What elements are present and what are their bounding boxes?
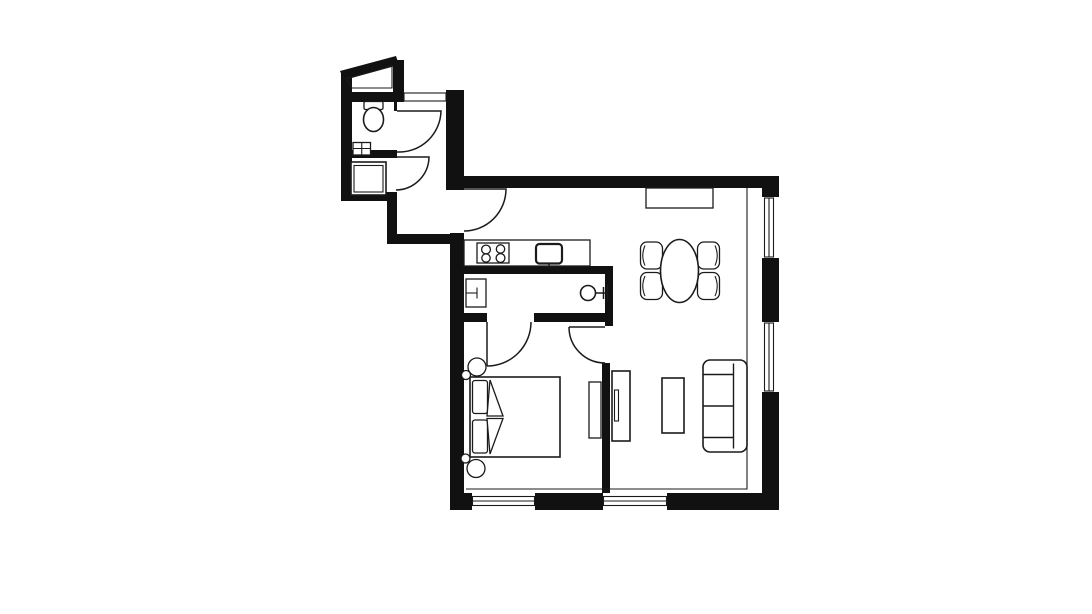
main-top-wall (446, 176, 772, 188)
living-area (612, 360, 747, 452)
dining-chair (698, 242, 720, 269)
bottom-wall-window-left (473, 497, 535, 506)
entry-stub-wall (393, 60, 404, 102)
dining-chair (641, 273, 663, 300)
floor-plan-canvas: Apartment floor plan (0, 0, 1092, 614)
bedroom-living-divider-wall (602, 363, 610, 493)
tv-unit (612, 371, 630, 441)
right-wall-window-lower (765, 323, 774, 391)
appliance-refrigerator (466, 279, 486, 307)
bottom-wall-window-right (604, 497, 667, 506)
hallway-to-main-door (464, 189, 506, 231)
sideboard (646, 188, 713, 208)
bathroom-door (396, 157, 429, 190)
entry-threshold (404, 93, 446, 101)
ensuite-top-wall (462, 266, 613, 274)
dining-area (641, 188, 720, 303)
dresser (589, 382, 601, 438)
bottom-wall-left (450, 493, 472, 510)
dining-chair (641, 242, 663, 269)
wc-partition-stub (394, 102, 397, 111)
wc-washbasin (353, 143, 371, 156)
pillow (473, 420, 488, 453)
bathroom (351, 162, 386, 195)
hallway-right-wall (446, 90, 464, 190)
ensuite-to-bedroom-door (487, 322, 531, 366)
burner (496, 245, 504, 253)
main-left-wall (450, 233, 464, 510)
burner (496, 254, 505, 263)
kitchen (464, 240, 590, 268)
ensuite-utility (466, 279, 608, 307)
shower-tray (351, 162, 386, 195)
right-wall-window-upper (765, 198, 774, 257)
dining-table (661, 240, 699, 303)
sofa (703, 360, 747, 452)
bedroom (461, 358, 601, 478)
coffee-table (662, 378, 684, 433)
ensuite-bottom-wall-right (534, 313, 613, 322)
main-to-bedroom-door (569, 327, 605, 363)
toilet-bowl (364, 108, 384, 132)
wc-door (397, 111, 441, 152)
burner (482, 254, 490, 262)
bottom-wall-center (535, 493, 603, 510)
bottom-wall-right (667, 493, 779, 510)
round-washbasin (581, 285, 609, 302)
kitchen-sink (536, 244, 562, 268)
floor-plan: Apartment floor plan (0, 0, 1092, 614)
right-wall-upper (762, 176, 779, 197)
right-wall-middle (762, 258, 779, 322)
cooktop (477, 243, 509, 263)
dining-chair (698, 273, 720, 300)
ensuite-bottom-wall-left (462, 313, 487, 322)
right-wall-lower (762, 392, 779, 510)
burner (482, 245, 491, 254)
pillow (473, 381, 488, 414)
wc-room (353, 102, 384, 156)
